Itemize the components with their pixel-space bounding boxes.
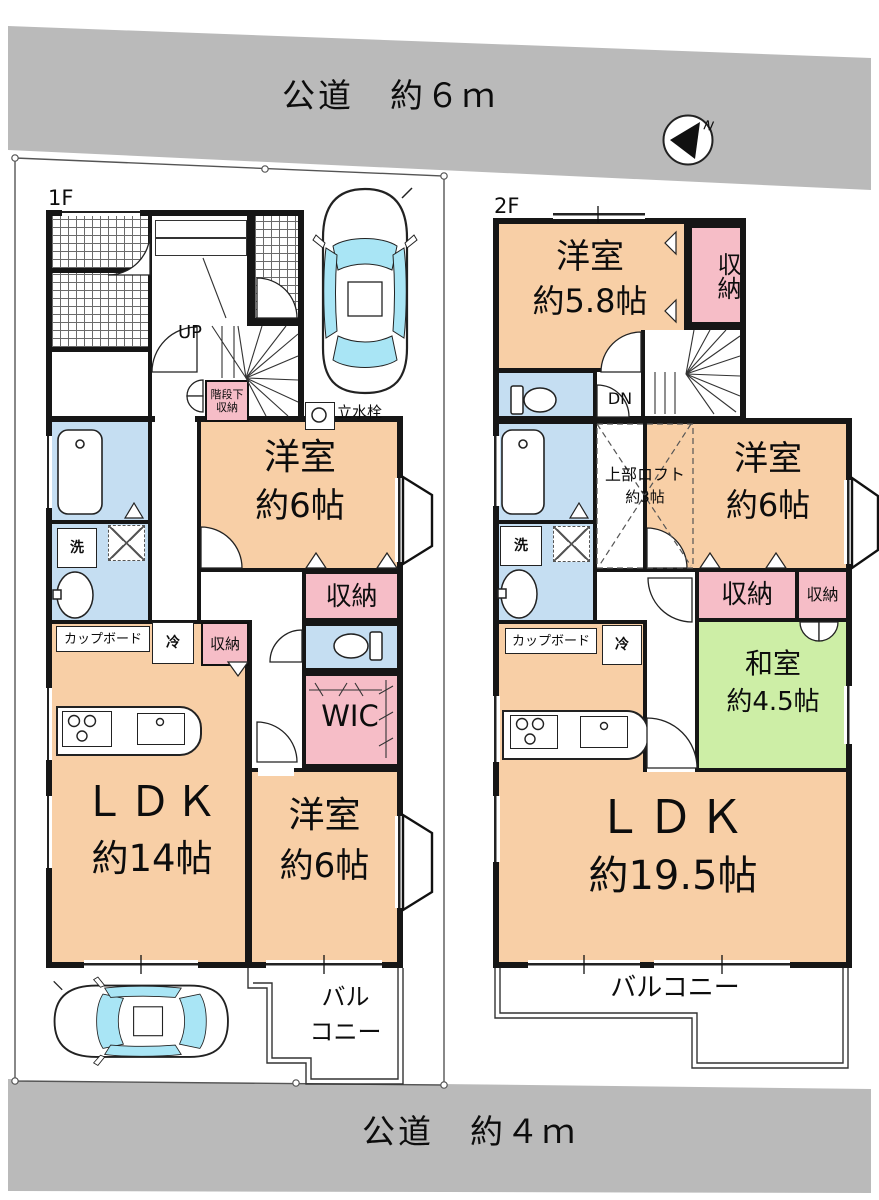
f1-fridge: 冷	[152, 622, 194, 664]
f1-window-bath-west	[44, 436, 52, 508]
fridge-label: 冷	[166, 636, 180, 650]
car-bottom-parking	[54, 977, 228, 1065]
f1-hall-lower	[52, 352, 148, 416]
f1-kitchen-storage: 収納	[201, 622, 249, 666]
f2-ldk-label: ＬＤＫ 約19.5帖	[528, 792, 818, 898]
f1-window-bedroom-south	[266, 960, 382, 969]
f1-entrance-closet-shelf1	[155, 220, 247, 238]
f2-corridor-v	[647, 620, 695, 772]
f2-storage-north-label: 収納	[692, 240, 740, 312]
f2-stair-winder	[645, 330, 740, 416]
f2-japanese-room-label: 和室 約4.5帖	[700, 648, 846, 717]
f2-corridor-h	[597, 572, 695, 620]
room-size: 約19.5帖	[528, 854, 818, 899]
f1-entrance-closet-shelf2	[155, 238, 247, 256]
f1-floor-mat-box	[108, 525, 145, 561]
f2-washer-box: 洗	[500, 526, 542, 566]
f2-window-ldk-south1	[528, 960, 640, 969]
f2-window-bath-west	[491, 436, 500, 506]
f1-window-ldk-west1	[44, 688, 52, 760]
room-size: 約6帖	[252, 847, 397, 885]
loft-name: 上部ロフト	[590, 466, 700, 484]
room-name: 洋室	[688, 440, 848, 478]
f1-balcony-label: バル コニー	[298, 984, 393, 1046]
room-size: 約4.5帖	[700, 688, 846, 717]
f1-under-stair-storage: 階段下 収納	[205, 380, 249, 422]
f2-window-ldk-west1	[491, 696, 500, 762]
f1-corridor-west	[152, 422, 197, 620]
f2-window-ldk-south2	[654, 960, 790, 969]
f1-window-ldk-south	[84, 960, 198, 969]
car-top-parking	[313, 188, 417, 393]
f1-bedroom-south-label: 洋室 約6帖	[252, 796, 397, 885]
f1-floor-label: 1F	[48, 187, 94, 211]
washer-label: 洗	[514, 539, 528, 553]
f2-sink	[580, 716, 628, 748]
f2-floor-label: 2F	[494, 195, 540, 219]
cupboard-label: カップボード	[512, 635, 590, 648]
f1-washer-box: 洗	[57, 528, 97, 568]
f1-storage-mid-label: 収納	[306, 583, 397, 612]
f2-floor-mat-box	[553, 526, 590, 562]
room-size: 約6帖	[688, 488, 848, 524]
f2-window-ldk-west2	[491, 796, 500, 862]
fridge-label: 冷	[615, 638, 629, 652]
f1-ldk-label: ＬＤＫ 約14帖	[62, 778, 242, 879]
road-bottom-label: 公道 約４ｍ	[250, 1114, 690, 1151]
f1-window-ldk-west2	[44, 796, 52, 868]
f1-sink	[137, 713, 185, 745]
f2-balcony-label: バルコニー	[570, 974, 780, 1003]
room-name: 洋室	[500, 238, 680, 276]
f2-stove	[510, 715, 558, 749]
room-name: ＬＤＫ	[62, 778, 242, 825]
room-name: ＬＤＫ	[528, 792, 818, 844]
road-top-label: 公道 約６ｍ	[170, 78, 610, 115]
under-stair-label-line1: 階段下	[211, 388, 244, 401]
f2-storage-b-label: 収納	[799, 586, 846, 604]
f2-toilet-room	[499, 373, 593, 416]
f1-porch-upper	[52, 216, 148, 268]
f2-bedroom-east-label: 洋室 約6帖	[688, 440, 848, 524]
floor-plan-page: { "colors": { "room": "#f8cfa6", "storag…	[0, 0, 879, 1200]
room-size: 約6帖	[210, 487, 390, 525]
f2-window-north	[553, 210, 645, 219]
room-name: 洋室	[252, 796, 397, 836]
f2-cupboard: カップボード	[505, 628, 597, 654]
f1-corridor-mid	[201, 572, 302, 620]
f1-cupboard: カップボード	[56, 626, 150, 652]
f2-fridge: 冷	[602, 625, 642, 665]
f1-up-label: UP	[168, 323, 212, 343]
f1-toilet-room	[306, 626, 397, 668]
f1-porch-lower	[52, 273, 148, 347]
under-stair-label-line2: 収納	[211, 401, 244, 414]
f1-stove	[62, 711, 112, 747]
f1-passage-gap	[155, 412, 195, 424]
room-name: 和室	[700, 648, 846, 679]
f2-loft-label: 上部ロフト 約3帖	[590, 466, 700, 506]
room-size: 約5.8帖	[500, 284, 680, 320]
room-size: 約14帖	[62, 838, 242, 879]
compass-north-letter: N	[702, 118, 715, 135]
f2-dn-label: DN	[599, 390, 641, 408]
f2-storage-a-label: 収納	[699, 581, 795, 610]
loft-size: 約3帖	[590, 489, 700, 506]
kitchen-storage-label: 収納	[210, 637, 240, 652]
cupboard-label: カップボード	[64, 633, 142, 646]
f1-wic-label: WIC	[306, 700, 394, 732]
f1-window-bay-north-gap	[395, 478, 404, 562]
f1-bedroom-south-doorway	[258, 766, 294, 776]
f2-bathroom	[499, 424, 593, 520]
balcony-line2: コニー	[298, 1019, 393, 1046]
f1-bedroom-north-label: 洋室 約6帖	[210, 438, 390, 525]
f1-tap-label: 立水栓	[337, 404, 407, 421]
f1-bathroom	[52, 422, 148, 520]
balcony-line1: バル	[298, 984, 393, 1011]
f1-porch-right	[255, 216, 298, 318]
f1-corridor-south	[252, 620, 302, 768]
f2-bedroom-north-label: 洋室 約5.8帖	[500, 238, 680, 320]
f1-outdoor-tap-box	[305, 402, 335, 430]
washer-label: 洗	[70, 541, 84, 555]
compass-icon: N	[664, 116, 716, 165]
room-name: 洋室	[210, 438, 390, 478]
